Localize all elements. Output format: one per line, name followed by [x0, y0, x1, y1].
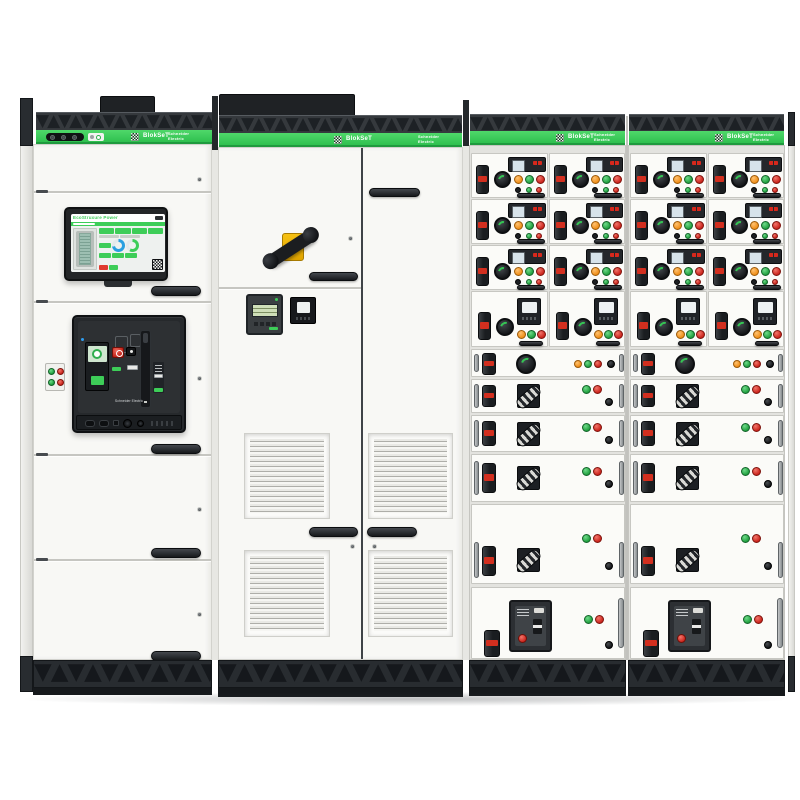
door-handle[interactable]: [367, 527, 417, 537]
drawer-handle[interactable]: [713, 257, 726, 286]
green-pushbutton[interactable]: [743, 360, 751, 368]
amber-pushbutton[interactable]: [591, 267, 600, 276]
green-tile[interactable]: [115, 228, 130, 234]
mccb-compartment[interactable]: [471, 587, 625, 659]
drawer-cam-switch[interactable]: [517, 422, 540, 446]
red-pushbutton[interactable]: [773, 330, 782, 339]
red-pushbutton[interactable]: [772, 221, 781, 230]
green-tile-small[interactable]: [99, 253, 111, 258]
green-tile-small[interactable]: [112, 253, 124, 258]
door-seam: [219, 287, 361, 289]
micrologic-status-circle: [92, 349, 102, 359]
panel-gap-top: [463, 100, 469, 146]
withdrawable-drawer-unit[interactable]: [549, 245, 625, 290]
drawer-grip-handle[interactable]: [517, 193, 545, 198]
breaker-text-lines: [517, 609, 529, 618]
metered-drawer-unit[interactable]: [630, 291, 707, 347]
red-pushbutton[interactable]: [695, 221, 704, 230]
drawer-side-handle[interactable]: [474, 384, 479, 408]
drawer-side-handle[interactable]: [474, 461, 479, 495]
red-pushbutton[interactable]: [536, 175, 545, 184]
drawer-rotary-switch[interactable]: [675, 354, 695, 374]
drawer-control-module: [745, 157, 782, 172]
hmi-content: [71, 226, 165, 272]
lock-knob[interactable]: [605, 562, 613, 570]
withdrawable-drawer-unit[interactable]: [549, 153, 625, 198]
breaker-trip-button[interactable]: [518, 634, 527, 643]
withdrawable-drawer-unit[interactable]: [549, 199, 625, 244]
hmi-bar-row: [99, 235, 163, 238]
hmi-device-card[interactable]: [73, 228, 97, 270]
panel4-plinth: ▼▲▼▲▼▲▼▲▼▲▼▲▼▲▼▲▼▲▼▲▼▲▼▲▼▲▼▲▼▲▼▲▼▲▼▲▼▲▼▲: [628, 660, 785, 688]
panel-gap-top: [212, 96, 218, 150]
door-status-indicators: [46, 133, 84, 141]
logo-line2: Electric: [168, 137, 189, 142]
green-pushbutton[interactable]: [741, 534, 750, 543]
drawer-side-handle[interactable]: [633, 384, 638, 408]
amber-pushbutton[interactable]: [591, 175, 600, 184]
drawer-grip-handle[interactable]: [753, 285, 781, 290]
switch-feeder-drawer[interactable]: [630, 379, 784, 413]
screw: [197, 507, 202, 512]
drawer-handle[interactable]: [554, 211, 567, 240]
drawer-grip-handle[interactable]: [753, 193, 781, 198]
drawer-grip-handle[interactable]: [755, 341, 779, 346]
green-tile[interactable]: [99, 228, 114, 234]
drawer-handle[interactable]: [635, 211, 648, 240]
green-tile-small[interactable]: [125, 253, 137, 258]
green-pushbutton[interactable]: [527, 330, 536, 339]
drawer-rotary-switch[interactable]: [653, 263, 670, 280]
left-end-panel: [20, 98, 33, 692]
amber-pushbutton[interactable]: [673, 267, 682, 276]
meter-buttons[interactable]: [254, 322, 276, 326]
drawer-handle[interactable]: [641, 385, 655, 407]
green-pushbutton[interactable]: [48, 368, 55, 375]
drawer-handle[interactable]: [484, 630, 500, 657]
withdrawable-drawer-unit[interactable]: [471, 199, 548, 244]
switch-feeder-drawer[interactable]: [471, 415, 625, 452]
cradle-vents: [151, 421, 175, 426]
amber-pushbutton[interactable]: [591, 221, 600, 230]
amber-pushbutton[interactable]: [733, 360, 741, 368]
amber-pushbutton[interactable]: [753, 330, 762, 339]
withdrawable-drawer-unit[interactable]: [471, 153, 548, 198]
amber-pushbutton[interactable]: [750, 175, 759, 184]
drawer-grip-handle[interactable]: [678, 341, 702, 346]
plinth-vent-pattern: ▼▲▼▲▼▲▼▲▼▲▼▲▼▲▼▲▼▲▼▲▼▲▼▲▼▲▼▲▼▲▼▲▼▲▼▲▼▲▼▲: [34, 661, 211, 684]
drawer-handle[interactable]: [482, 353, 496, 375]
label-chip: [154, 374, 163, 378]
green-pushbutton[interactable]: [584, 360, 592, 368]
drawer-rotary-switch[interactable]: [572, 171, 589, 188]
withdrawable-drawer-unit[interactable]: [630, 199, 707, 244]
withdrawable-drawer-unit[interactable]: [630, 245, 707, 290]
drawer-grip-handle[interactable]: [753, 239, 781, 244]
meter-wordmark: [269, 327, 278, 330]
green-tile-small[interactable]: [99, 243, 111, 248]
drawer-handle[interactable]: [637, 312, 650, 340]
micrologic-green-button[interactable]: [91, 376, 104, 385]
drawer-rotary-switch[interactable]: [653, 217, 670, 234]
red-pushbutton[interactable]: [593, 385, 602, 394]
red-pushbutton[interactable]: [593, 534, 602, 543]
drawer-cam-switch[interactable]: [676, 548, 699, 572]
withdrawable-drawer-unit[interactable]: [471, 245, 548, 290]
switch-feeder-drawer-tall[interactable]: [630, 504, 784, 584]
green-pushbutton[interactable]: [761, 175, 770, 184]
product-name-label: BlokSeT: [346, 136, 372, 142]
green-pushbutton[interactable]: [741, 423, 750, 432]
amber-pushbutton[interactable]: [673, 221, 682, 230]
green-pushbutton[interactable]: [684, 175, 693, 184]
door-seam: [34, 301, 211, 303]
drawer-handle[interactable]: [482, 421, 496, 446]
drawer-rotary-switch[interactable]: [516, 354, 536, 374]
drawer-control-module: [586, 157, 623, 172]
feeder-drawer[interactable]: [630, 349, 784, 377]
drawer-rotary-switch[interactable]: [572, 217, 589, 234]
amber-pushbutton[interactable]: [676, 330, 685, 339]
gauge-donut-blue: [112, 239, 125, 252]
red-pushbutton[interactable]: [613, 267, 622, 276]
door-handle[interactable]: [151, 286, 201, 296]
green-pushbutton[interactable]: [741, 385, 750, 394]
panel2-ventilation-grid: ▼▲▼▲▼▲▼▲▼▲▼▲▼▲▼▲▼▲▼▲▼▲▼▲▼▲▼▲▼▲▼▲▼▲▼▲▼▲▼▲: [219, 115, 462, 133]
hmi-screen[interactable]: EcoStruxure Power: [71, 214, 165, 272]
breaker-trip-button[interactable]: [677, 634, 686, 643]
green-pushbutton[interactable]: [741, 467, 750, 476]
drawer-side-handle[interactable]: [619, 384, 624, 408]
drawer-rotary-switch[interactable]: [496, 318, 514, 336]
screw: [197, 612, 202, 617]
door-handle[interactable]: [151, 444, 201, 454]
amber-pushbutton[interactable]: [750, 221, 759, 230]
drawer-side-handle[interactable]: [778, 420, 783, 447]
hinge: [36, 190, 48, 193]
blue-indicator-led: [81, 338, 84, 341]
drawer-grip-handle[interactable]: [594, 193, 622, 198]
drawer-side-handle[interactable]: [777, 598, 783, 648]
drawer-meter[interactable]: [594, 298, 618, 325]
hmi-bottom-row: [99, 259, 163, 270]
red-pushbutton[interactable]: [614, 330, 623, 339]
switch-feeder-drawer[interactable]: [471, 379, 625, 413]
hmi-header: EcoStruxure Power: [71, 214, 165, 222]
red-pushbutton[interactable]: [696, 330, 705, 339]
drawer-side-handle[interactable]: [778, 384, 783, 408]
drawer-meter[interactable]: [753, 298, 777, 325]
metered-drawer-unit[interactable]: [549, 291, 625, 347]
drawer-grip-handle[interactable]: [676, 285, 704, 290]
panel2-roof-box: [219, 94, 355, 115]
hinge: [36, 558, 48, 561]
green-pushbutton[interactable]: [761, 221, 770, 230]
drawer-rotary-switch[interactable]: [733, 318, 751, 336]
drawer-handle[interactable]: [713, 211, 726, 240]
red-pushbutton[interactable]: [752, 534, 761, 543]
mccb-compartment[interactable]: [630, 587, 784, 659]
drawer-grip-handle[interactable]: [676, 239, 704, 244]
drawer-cam-switch[interactable]: [676, 422, 699, 446]
green-pushbutton[interactable]: [686, 330, 695, 339]
drawer-grip-handle[interactable]: [594, 239, 622, 244]
green-tile[interactable]: [132, 228, 147, 234]
drawer-handle[interactable]: [482, 546, 496, 576]
red-pushbutton[interactable]: [57, 368, 64, 375]
drawer-handle[interactable]: [635, 257, 648, 286]
green-pushbutton[interactable]: [602, 221, 611, 230]
green-pushbutton[interactable]: [582, 467, 591, 476]
red-pushbutton[interactable]: [613, 175, 622, 184]
red-pushbutton[interactable]: [772, 267, 781, 276]
withdrawable-drawer-unit[interactable]: [708, 199, 784, 244]
switch-feeder-drawer[interactable]: [630, 415, 784, 452]
lock-knob[interactable]: [764, 641, 772, 649]
drawer-rotary-switch[interactable]: [731, 217, 748, 234]
drawer-side-handle[interactable]: [618, 598, 624, 648]
drawer-meter[interactable]: [517, 298, 541, 325]
amber-pushbutton[interactable]: [517, 330, 526, 339]
drawer-cam-switch[interactable]: [676, 466, 699, 490]
molded-case-breaker[interactable]: [668, 600, 711, 652]
drawer-handle[interactable]: [641, 546, 655, 576]
amber-pushbutton[interactable]: [574, 360, 582, 368]
green-pushbutton[interactable]: [684, 221, 693, 230]
louver-grille: [244, 433, 330, 519]
drawer-grip-handle[interactable]: [596, 341, 620, 346]
drawer-side-handle[interactable]: [778, 461, 783, 495]
drawer-handle[interactable]: [641, 421, 655, 446]
amber-pushbutton[interactable]: [514, 267, 523, 276]
amber-pushbutton[interactable]: [750, 267, 759, 276]
green-pushbutton[interactable]: [525, 221, 534, 230]
door-handle[interactable]: [369, 188, 420, 197]
screw: [197, 177, 202, 182]
door-handle[interactable]: [151, 548, 201, 558]
drawer-side-handle[interactable]: [778, 542, 783, 578]
crank-socket[interactable]: [137, 420, 144, 427]
drawer-control-module: [745, 249, 782, 264]
lock-knob[interactable]: [605, 480, 613, 488]
drawer-meter[interactable]: [676, 298, 700, 325]
red-pushbutton[interactable]: [593, 467, 602, 476]
lock-knob[interactable]: [764, 480, 772, 488]
drawer-rotary-switch[interactable]: [653, 171, 670, 188]
green-pushbutton[interactable]: [743, 615, 752, 624]
red-pushbutton[interactable]: [753, 360, 761, 368]
push-off-button[interactable]: [112, 347, 124, 358]
red-pushbutton[interactable]: [536, 267, 545, 276]
green-pushbutton[interactable]: [584, 615, 593, 624]
hmi-gauge-row: [99, 239, 163, 252]
lock-knob[interactable]: [764, 436, 772, 444]
drawer-rotary-switch[interactable]: [494, 171, 511, 188]
drawer-handle[interactable]: [478, 312, 491, 340]
drawer-handle[interactable]: [476, 165, 489, 194]
green-pushbutton[interactable]: [763, 330, 772, 339]
amber-pushbutton[interactable]: [514, 221, 523, 230]
red-pushbutton[interactable]: [772, 175, 781, 184]
drawer-side-handle[interactable]: [474, 542, 479, 578]
red-pushbutton[interactable]: [695, 175, 704, 184]
drawer-side-handle[interactable]: [778, 354, 783, 372]
feeder-drawer[interactable]: [471, 349, 625, 377]
metered-drawer-unit[interactable]: [708, 291, 784, 347]
red-pushbutton[interactable]: [594, 360, 602, 368]
drawer-side-handle[interactable]: [633, 461, 638, 495]
drawer-rotary-switch[interactable]: [574, 318, 592, 336]
green-pushbutton[interactable]: [602, 175, 611, 184]
lock-knob[interactable]: [764, 562, 772, 570]
screw: [372, 544, 377, 549]
drawer-handle[interactable]: [482, 385, 496, 407]
crank-socket[interactable]: [123, 419, 132, 428]
hmi-logo-chip: [155, 216, 163, 220]
green-pushbutton[interactable]: [761, 267, 770, 276]
lock-knob[interactable]: [764, 398, 772, 406]
drawer-grip-handle[interactable]: [676, 193, 704, 198]
drawer-handle[interactable]: [641, 353, 655, 375]
red-pushbutton[interactable]: [57, 379, 64, 386]
switch-feeder-drawer[interactable]: [471, 454, 625, 502]
drawer-handle[interactable]: [643, 630, 659, 657]
green-pushbutton[interactable]: [582, 385, 591, 394]
switch-feeder-drawer-tall[interactable]: [471, 504, 625, 584]
green-pushbutton[interactable]: [582, 534, 591, 543]
red-pushbutton[interactable]: [613, 221, 622, 230]
green-pushbutton[interactable]: [525, 267, 534, 276]
hmi-brand-text: EcoStruxure Power: [73, 215, 118, 220]
door-handle[interactable]: [309, 272, 358, 281]
molded-case-breaker[interactable]: [509, 600, 552, 652]
schneider-logo: SchneiderElectric: [418, 135, 439, 144]
drawer-cam-switch[interactable]: [676, 384, 699, 408]
drawer-handle[interactable]: [554, 257, 567, 286]
red-pushbutton[interactable]: [536, 221, 545, 230]
lock-knob[interactable]: [605, 436, 613, 444]
drawer-rotary-switch[interactable]: [655, 318, 673, 336]
drawer-grip-handle[interactable]: [517, 285, 545, 290]
green-pushbutton[interactable]: [48, 379, 55, 386]
green-pushbutton[interactable]: [604, 330, 613, 339]
drawer-side-handle[interactable]: [474, 354, 479, 372]
green-pushbutton[interactable]: [582, 423, 591, 432]
drawer-handle[interactable]: [476, 257, 489, 286]
red-pushbutton[interactable]: [754, 615, 763, 624]
air-circuit-breaker: Schneider Electric: [72, 315, 186, 433]
power-meter[interactable]: [246, 294, 283, 335]
logo-line2: Electric: [594, 138, 615, 143]
green-pushbutton[interactable]: [684, 267, 693, 276]
red-pushbutton[interactable]: [593, 423, 602, 432]
drawer-cam-switch[interactable]: [517, 384, 540, 408]
louver-grille: [368, 433, 453, 519]
drawer-handle[interactable]: [635, 165, 648, 194]
drawer-side-handle[interactable]: [633, 354, 638, 372]
drawer-side-handle[interactable]: [619, 354, 624, 372]
drawer-handle[interactable]: [556, 312, 569, 340]
product-name-label: BlokSeT: [568, 134, 594, 140]
withdrawable-drawer-unit[interactable]: [708, 153, 784, 198]
drawer-side-handle[interactable]: [619, 542, 624, 578]
breaker-toggle[interactable]: [692, 619, 701, 634]
amber-pushbutton[interactable]: [673, 175, 682, 184]
drawer-grip-handle[interactable]: [594, 285, 622, 290]
withdrawable-drawer-unit[interactable]: [630, 153, 707, 198]
lock-knob[interactable]: [766, 360, 774, 368]
hmi-title-dash: [73, 223, 95, 225]
drawer-side-handle[interactable]: [619, 461, 624, 495]
red-pushbutton[interactable]: [537, 330, 546, 339]
switchboard-lineup-photo: ▼▲▼▲▼▲▼▲▼▲▼▲▼▲▼▲▼▲▼▲▼▲▼▲▼▲▼▲▼▲▼▲▼▲▼▲▼▲▼▲…: [0, 0, 800, 800]
drawer-rotary-switch[interactable]: [731, 263, 748, 280]
drawer-grip-handle[interactable]: [517, 239, 545, 244]
red-tile[interactable]: [99, 265, 108, 270]
green-tile[interactable]: [148, 228, 163, 234]
red-pushbutton[interactable]: [752, 385, 761, 394]
lock-knob[interactable]: [607, 360, 615, 368]
drawer-cam-switch[interactable]: [517, 466, 540, 490]
compact-meter[interactable]: [290, 297, 316, 324]
green-tile-small[interactable]: [109, 265, 118, 270]
hmi-touchscreen[interactable]: EcoStruxure Power: [64, 207, 168, 281]
drawer-handle[interactable]: [554, 165, 567, 194]
switch-feeder-drawer[interactable]: [630, 454, 784, 502]
amber-pushbutton[interactable]: [514, 175, 523, 184]
withdrawable-drawer-unit[interactable]: [708, 245, 784, 290]
plinth-vent-pattern: ▼▲▼▲▼▲▼▲▼▲▼▲▼▲▼▲▼▲▼▲▼▲▼▲▼▲▼▲▼▲▼▲▼▲▼▲▼▲▼▲: [629, 661, 784, 684]
lock-knob[interactable]: [605, 641, 613, 649]
micrologic-trip-unit[interactable]: [85, 342, 109, 391]
push-on-button[interactable]: [126, 347, 136, 356]
vent-pattern: ▼▲▼▲▼▲▼▲▼▲▼▲▼▲▼▲▼▲▼▲▼▲▼▲▼▲▼▲▼▲▼▲▼▲▼▲▼▲▼▲: [629, 115, 784, 131]
drawer-cam-switch[interactable]: [517, 548, 540, 572]
red-pushbutton[interactable]: [595, 615, 604, 624]
drawer-side-handle[interactable]: [619, 420, 624, 447]
red-pushbutton[interactable]: [695, 267, 704, 276]
breaker-toggle[interactable]: [533, 619, 542, 634]
racking-track[interactable]: [140, 330, 151, 408]
schneider-logo: SchneiderElectric: [594, 133, 615, 142]
drawer-rotary-switch[interactable]: [494, 217, 511, 234]
metered-drawer-unit[interactable]: [471, 291, 548, 347]
drawer-handle[interactable]: [476, 211, 489, 240]
drawer-rotary-switch[interactable]: [572, 263, 589, 280]
hmi-device-screen: [79, 233, 91, 265]
drawer-side-handle[interactable]: [633, 420, 638, 447]
drawer-side-handle[interactable]: [474, 420, 479, 447]
drawer-handle[interactable]: [641, 463, 655, 493]
breaker-cradle: [76, 415, 182, 430]
drawer-handle[interactable]: [713, 165, 726, 194]
red-pushbutton[interactable]: [752, 423, 761, 432]
drawer-grip-handle[interactable]: [519, 341, 543, 346]
drawer-handle[interactable]: [715, 312, 728, 340]
door-handle[interactable]: [309, 527, 358, 537]
drawer-handle[interactable]: [482, 463, 496, 493]
ready-indicator: [112, 367, 121, 371]
drawer-rotary-switch[interactable]: [731, 171, 748, 188]
green-pushbutton[interactable]: [602, 267, 611, 276]
amber-pushbutton[interactable]: [594, 330, 603, 339]
lock-knob[interactable]: [605, 398, 613, 406]
green-pushbutton[interactable]: [525, 175, 534, 184]
drawer-rotary-switch[interactable]: [494, 263, 511, 280]
drawer-side-handle[interactable]: [633, 542, 638, 578]
grille-slats: [250, 439, 324, 513]
red-pushbutton[interactable]: [752, 467, 761, 476]
